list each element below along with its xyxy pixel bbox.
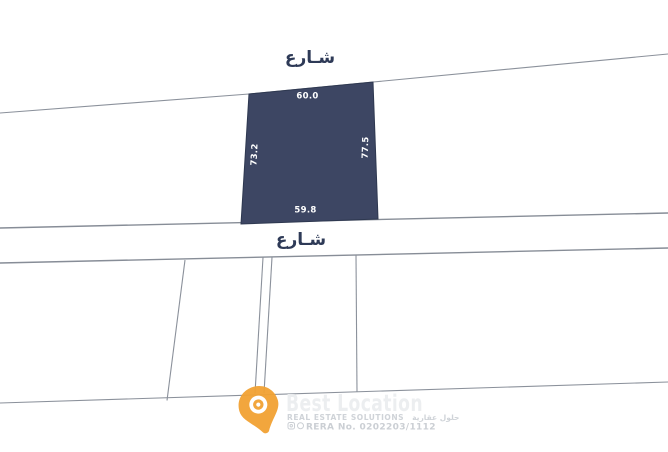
instagram-icon [288,423,295,430]
rera-number: RERA No. 0202203/1112 [306,423,436,433]
plot-divider-line [167,260,185,401]
parcel-dimension-left: 73.2 [249,143,260,166]
plot-divider-line [264,257,272,393]
plot-divider-line [356,255,357,392]
instagram-icon-lens [290,425,292,427]
street-bottom-label: شـارع [276,230,326,250]
plot-divider-line [255,258,263,394]
parcel-dimension-right: 77.5 [361,136,372,159]
highlighted-parcel [241,82,378,224]
phone-icon [298,423,304,429]
watermark-social-icons [288,423,304,430]
brand-tagline-en: REAL ESTATE SOLUTIONS [287,413,404,422]
parcel-dimension-top: 60.0 [296,92,318,102]
brand-tagline-ar: حلول عقارية [412,413,459,422]
brand-pin-icon [234,381,286,438]
site-plan-map: 60.0 59.8 73.2 77.5 شـارع شـارع Best Loc… [0,0,668,452]
site-plan-page: 60.0 59.8 73.2 77.5 شـارع شـارع Best Loc… [0,0,668,452]
brand-tagline: REAL ESTATE SOLUTIONSحلول عقارية [287,413,459,422]
road-bottom-edge-line [0,248,668,263]
parcel-dimension-bottom: 59.8 [294,206,316,216]
street-top-label: شـارع [285,48,335,68]
